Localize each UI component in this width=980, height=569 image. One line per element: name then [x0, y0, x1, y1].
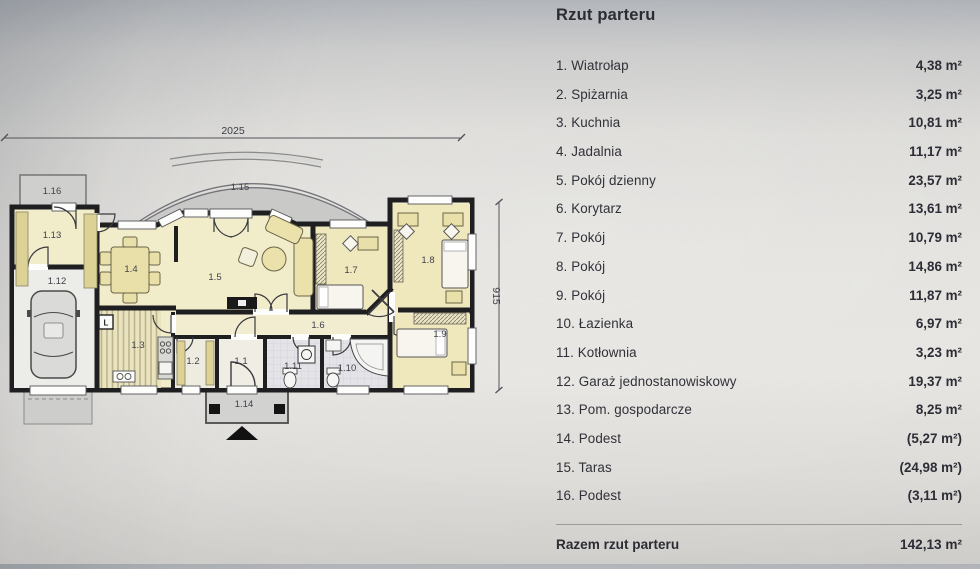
room-area: 4,38 m² — [916, 58, 962, 73]
bed-icon — [442, 240, 468, 288]
svg-text:L: L — [104, 319, 109, 328]
floor-plan: L — [0, 0, 540, 564]
room-list-item: 9. Pokój 11,87 m² — [556, 288, 962, 317]
room-list-item: 6. Korytarz 13,61 m² — [556, 201, 962, 230]
room-name: 1. Wiatrołap — [556, 58, 629, 73]
room-label-1-1: 1.1 — [234, 356, 247, 367]
dimension-height-label: 915 — [490, 287, 502, 305]
room-label-1-13: 1.13 — [43, 230, 62, 241]
room-name: 8. Pokój — [556, 259, 605, 274]
room-area: 14,86 m² — [908, 259, 962, 274]
shelf-icon — [206, 341, 214, 385]
desk-icon — [443, 213, 463, 226]
desk-icon — [358, 237, 378, 250]
room-label-1-12: 1.12 — [48, 276, 67, 287]
total-label: Razem rzut parteru — [556, 537, 679, 552]
room-label-1-14: 1.14 — [235, 399, 254, 410]
room-label-1-9: 1.9 — [433, 329, 446, 340]
sink-icon — [326, 340, 341, 351]
page-title: Rzut parteru — [556, 6, 962, 25]
room-list-item: 10. Łazienka 6,97 m² — [556, 316, 962, 345]
room-list-item: 7. Pokój 10,79 m² — [556, 230, 962, 259]
room-list-item: 12. Garaż jednostanowiskowy 19,37 m² — [556, 374, 962, 403]
room-list-item: 8. Pokój 14,86 m² — [556, 259, 962, 288]
room-name: 4. Jadalnia — [556, 144, 622, 159]
room-list-item: 14. Podest (5,27 m²) — [556, 431, 962, 460]
room-label-1-8: 1.8 — [421, 255, 434, 266]
room-label-1-11: 1.11 — [284, 361, 302, 372]
room-list-item: 5. Pokój dzienny 23,57 m² — [556, 173, 962, 202]
room-area: 19,37 m² — [908, 374, 962, 389]
room-name: 16. Podest — [556, 488, 621, 503]
room-area: 8,25 m² — [916, 402, 962, 417]
room-name: 2. Spiżarnia — [556, 87, 628, 102]
total-area: 142,13 m² — [900, 537, 962, 552]
room-list-item: 11. Kotłownia 3,23 m² — [556, 345, 962, 374]
room-name: 15. Taras — [556, 460, 612, 475]
dimension-width-label: 2025 — [221, 125, 245, 137]
room-label-1-2: 1.2 — [186, 356, 199, 367]
entrance-arrow-icon — [226, 426, 258, 440]
room-list-item: 1. Wiatrołap 4,38 m² — [556, 58, 962, 87]
room-list-item: 4. Jadalnia 11,17 m² — [556, 144, 962, 173]
cabinet-icon — [84, 214, 97, 288]
room-name: 13. Pom. gospodarcze — [556, 402, 692, 417]
screenshot-root: { "title": "Rzut parteru", "list": { "it… — [0, 0, 980, 564]
room-area: 6,97 m² — [916, 316, 962, 331]
driveway-shape — [24, 392, 92, 424]
room-name: 11. Kotłownia — [556, 345, 637, 360]
room-label-1-7: 1.7 — [344, 265, 357, 276]
room-area: 13,61 m² — [908, 201, 962, 216]
room-area: 10,81 m² — [908, 115, 962, 130]
room-label-1-10: 1.10 — [338, 363, 357, 374]
room-area: (24,98 m²) — [899, 460, 962, 475]
room-name: 7. Pokój — [556, 230, 605, 245]
room-list-item: 15. Taras (24,98 m²) — [556, 460, 962, 489]
bed-icon — [317, 285, 363, 309]
room-area: 3,23 m² — [916, 345, 962, 360]
tv-icon — [227, 297, 257, 309]
room-area: 11,17 m² — [909, 144, 962, 159]
room-name: 6. Korytarz — [556, 201, 622, 216]
room-label-1-4: 1.4 — [124, 264, 137, 275]
room-area: 23,57 m² — [908, 173, 962, 188]
room-name: 10. Łazienka — [556, 316, 633, 331]
fridge-icon: L — [99, 315, 113, 329]
room-list: 1. Wiatrołap 4,38 m² 2. Spiżarnia 3,25 m… — [556, 58, 962, 517]
shelf-icon — [177, 341, 185, 385]
room-list-panel: Rzut parteru 1. Wiatrołap 4,38 m² 2. Spi… — [556, 6, 962, 552]
room-area: 11,87 m² — [909, 288, 962, 303]
room-name: 5. Pokój dzienny — [556, 173, 656, 188]
nightstand-icon — [446, 291, 462, 303]
room-name: 3. Kuchnia — [556, 115, 620, 130]
room-label-1-5: 1.5 — [208, 272, 221, 283]
coffee-table-icon — [262, 247, 286, 271]
room-name: 9. Pokój — [556, 288, 605, 303]
room-area: (3,11 m²) — [908, 488, 962, 503]
room-list-item: 13. Pom. gospodarcze 8,25 m² — [556, 402, 962, 431]
room-label-1-3: 1.3 — [131, 340, 144, 351]
room-label-1-15: 1.15 — [231, 182, 250, 193]
nightstand-icon — [452, 362, 466, 375]
room-area: 10,79 m² — [908, 230, 962, 245]
floor-plan-svg: L — [0, 0, 540, 564]
room-list-item: 2. Spiżarnia 3,25 m² — [556, 87, 962, 116]
room-area: 3,25 m² — [916, 87, 962, 102]
desk-icon — [398, 213, 418, 226]
room-name: 14. Podest — [556, 431, 621, 446]
room-label-1-6: 1.6 — [311, 320, 324, 331]
room-list-item: 3. Kuchnia 10,81 m² — [556, 115, 962, 144]
car-icon — [27, 291, 80, 378]
room-area: (5,27 m²) — [907, 431, 962, 446]
room-label-1-16: 1.16 — [43, 186, 62, 197]
room-list-item: 16. Podest (3,11 m²) — [556, 488, 962, 517]
room-name: 12. Garaż jednostanowiskowy — [556, 374, 737, 389]
cabinet-icon — [16, 212, 28, 286]
total-row: Razem rzut parteru 142,13 m² — [556, 524, 962, 552]
